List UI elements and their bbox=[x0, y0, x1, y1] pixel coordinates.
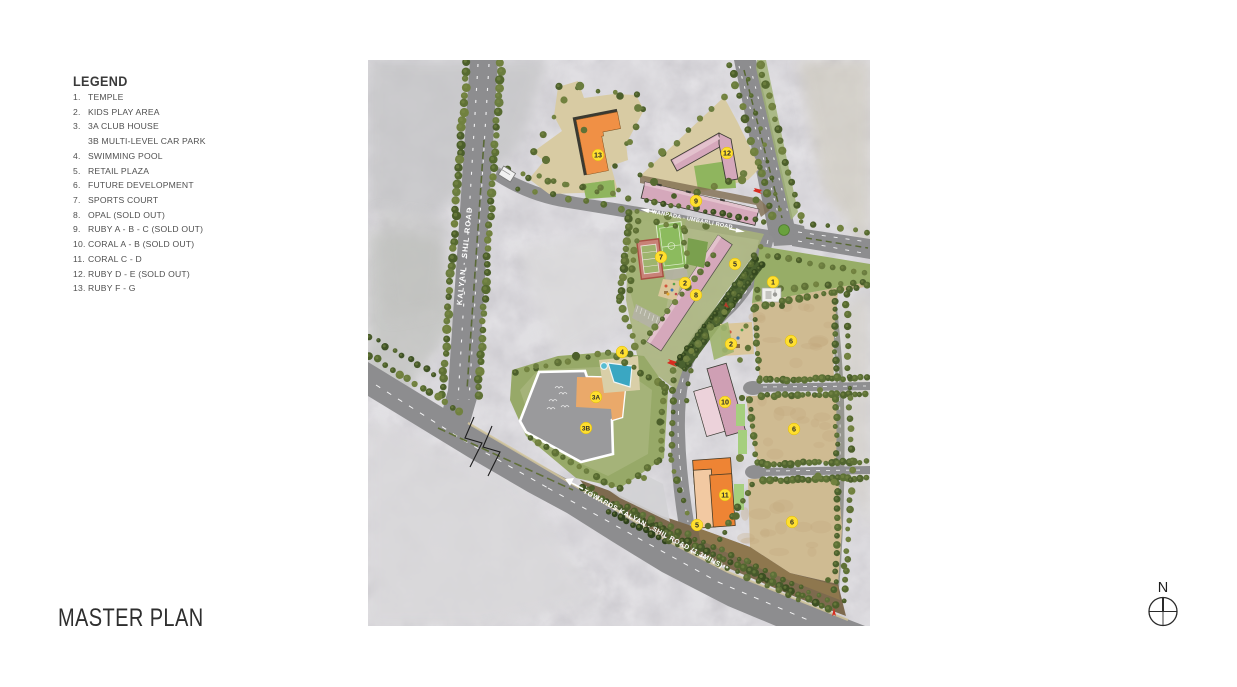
svg-text:8: 8 bbox=[694, 291, 698, 300]
svg-text:7: 7 bbox=[659, 253, 663, 262]
svg-text:3A: 3A bbox=[592, 394, 601, 401]
svg-text:5: 5 bbox=[733, 260, 737, 269]
svg-text:6: 6 bbox=[792, 425, 796, 434]
svg-text:6: 6 bbox=[789, 337, 793, 346]
svg-text:3B: 3B bbox=[582, 425, 591, 432]
svg-text:2: 2 bbox=[729, 340, 733, 349]
svg-text:10: 10 bbox=[721, 398, 729, 407]
svg-text:6: 6 bbox=[790, 518, 794, 527]
svg-text:13: 13 bbox=[594, 151, 602, 160]
svg-text:1: 1 bbox=[771, 278, 775, 287]
svg-text:4: 4 bbox=[620, 348, 624, 357]
svg-text:12: 12 bbox=[723, 149, 731, 158]
svg-text:2: 2 bbox=[683, 279, 687, 288]
svg-text:9: 9 bbox=[694, 197, 698, 206]
svg-text:11: 11 bbox=[721, 491, 729, 500]
svg-text:5: 5 bbox=[695, 521, 699, 530]
svg-text:N: N bbox=[1158, 580, 1168, 596]
